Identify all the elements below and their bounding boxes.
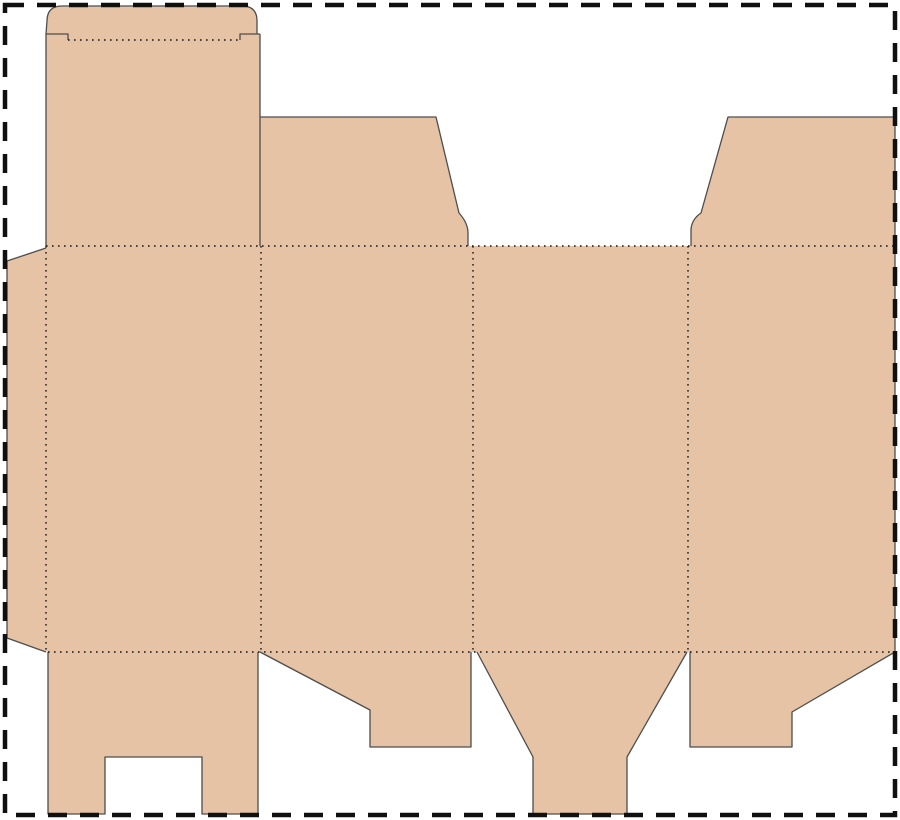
dieline-canvas xyxy=(0,0,900,820)
box-dieline-svg xyxy=(0,0,900,820)
die-silhouette xyxy=(7,6,895,814)
